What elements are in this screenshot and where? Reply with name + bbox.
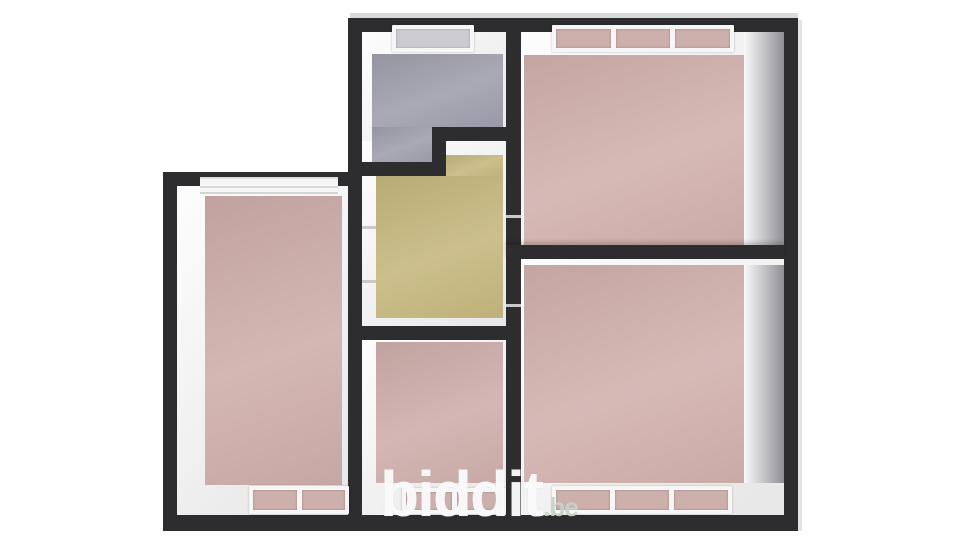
room-left-wall-bottom (163, 515, 362, 531)
room-middle-floor (376, 176, 503, 318)
room-top-center-floor (372, 54, 503, 127)
wall-center-left-vertical (348, 18, 362, 531)
window-bottom-right-room (552, 486, 732, 514)
wall-center-vertical (506, 18, 521, 531)
window-pane (253, 490, 297, 510)
door-jamb-mark (506, 215, 521, 218)
window-mullion (200, 186, 338, 188)
wall-step-horizontal-left (362, 162, 446, 176)
window-pane (674, 490, 728, 510)
watermark-brand-text: biddit (380, 462, 542, 526)
room-top-right-floor (524, 55, 744, 245)
floor-plan-3d-render: biddit.be (0, 0, 960, 540)
watermark: biddit.be (380, 462, 578, 526)
window-pane (615, 490, 669, 510)
window-left-room-bottom (249, 486, 349, 514)
window-pane (302, 490, 346, 510)
room-bottom-right-wall-shadow-face (744, 265, 784, 483)
room-left-wall-left (163, 172, 177, 531)
wall-middle-room-bottom (348, 326, 521, 340)
door-jamb-mark (362, 226, 376, 229)
room-bottom-right-floor (524, 265, 744, 483)
watermark-tld-text: .be (543, 494, 578, 520)
window-pane (556, 29, 611, 48)
door-jamb-mark (362, 280, 376, 283)
window-top-center-room (392, 25, 474, 52)
room-left-floor (205, 196, 342, 485)
window-top-right-room (552, 25, 734, 52)
room-top-right-wall-shadow-face (744, 32, 784, 245)
outer-wall-highlight-right (798, 20, 802, 531)
outer-wall-right (784, 18, 798, 531)
room-top-center-floor-lower-left (372, 127, 432, 162)
window-pane (616, 29, 671, 48)
window-left-room-top (200, 177, 338, 194)
door-jamb-mark (506, 304, 521, 307)
room-middle-floor-upper-right (446, 155, 503, 176)
window-pane (675, 29, 730, 48)
wall-divider-right-rooms (506, 245, 784, 259)
window-pane (396, 29, 470, 48)
